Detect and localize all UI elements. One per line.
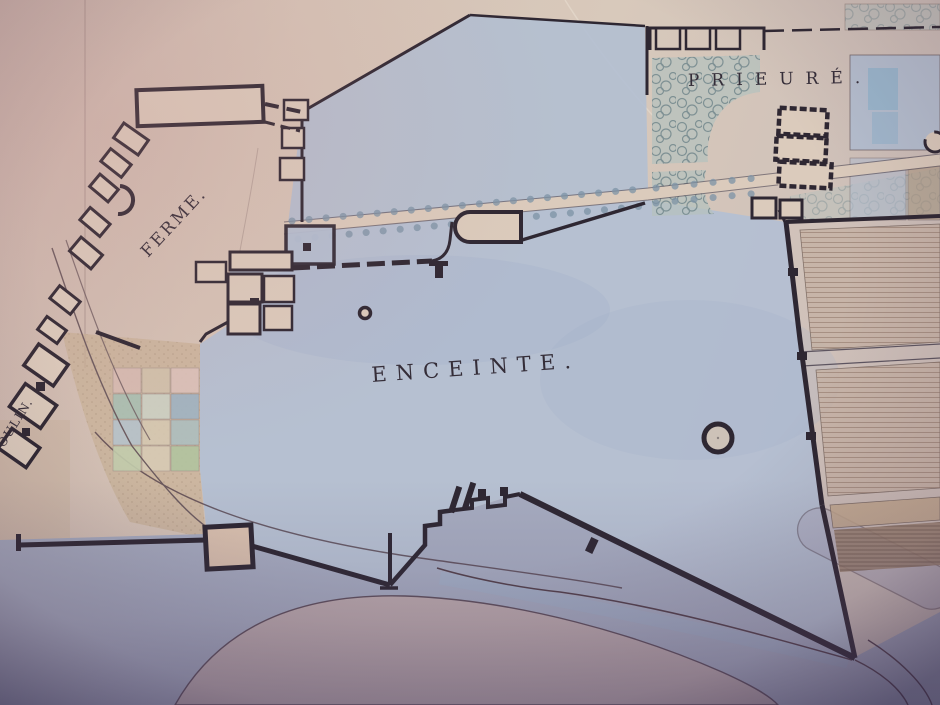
photo-bottom-shadow xyxy=(0,0,940,705)
map-plan-svg: FERME. PRIEURÉ. ENCEINTE. OULIN. xyxy=(0,0,940,705)
photographed-map: FERME. PRIEURÉ. ENCEINTE. OULIN. xyxy=(0,0,940,705)
